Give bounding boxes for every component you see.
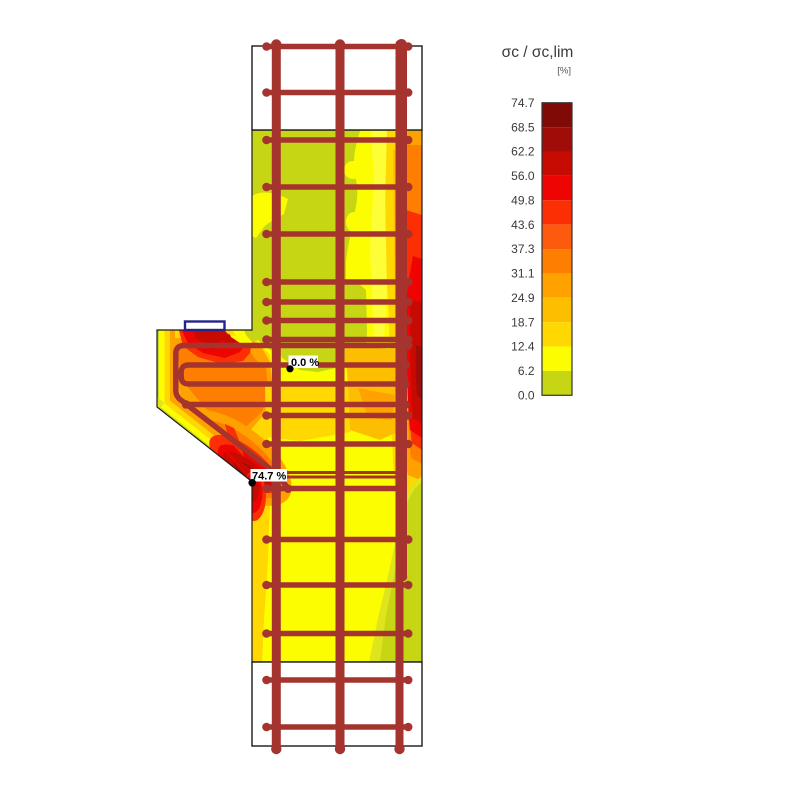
svg-text:[%]: [%] (557, 66, 571, 77)
svg-text:0.0: 0.0 (518, 389, 535, 403)
svg-text:74.7 %: 74.7 % (252, 470, 286, 482)
svg-text:24.9: 24.9 (511, 291, 535, 305)
svg-text:6.2: 6.2 (518, 364, 535, 378)
svg-text:37.3: 37.3 (511, 242, 535, 256)
svg-text:12.4: 12.4 (511, 340, 535, 354)
svg-text:56.0: 56.0 (511, 169, 535, 183)
svg-text:43.6: 43.6 (511, 218, 535, 232)
svg-text:18.7: 18.7 (511, 315, 535, 329)
svg-text:68.5: 68.5 (511, 120, 535, 134)
svg-text:62.2: 62.2 (511, 145, 535, 159)
svg-text:49.8: 49.8 (511, 194, 535, 208)
svg-text:σc / σc,lim: σc / σc,lim (502, 44, 574, 61)
svg-text:31.1: 31.1 (511, 267, 535, 281)
svg-text:0.0 %: 0.0 % (291, 357, 319, 369)
svg-text:74.7: 74.7 (511, 96, 535, 110)
